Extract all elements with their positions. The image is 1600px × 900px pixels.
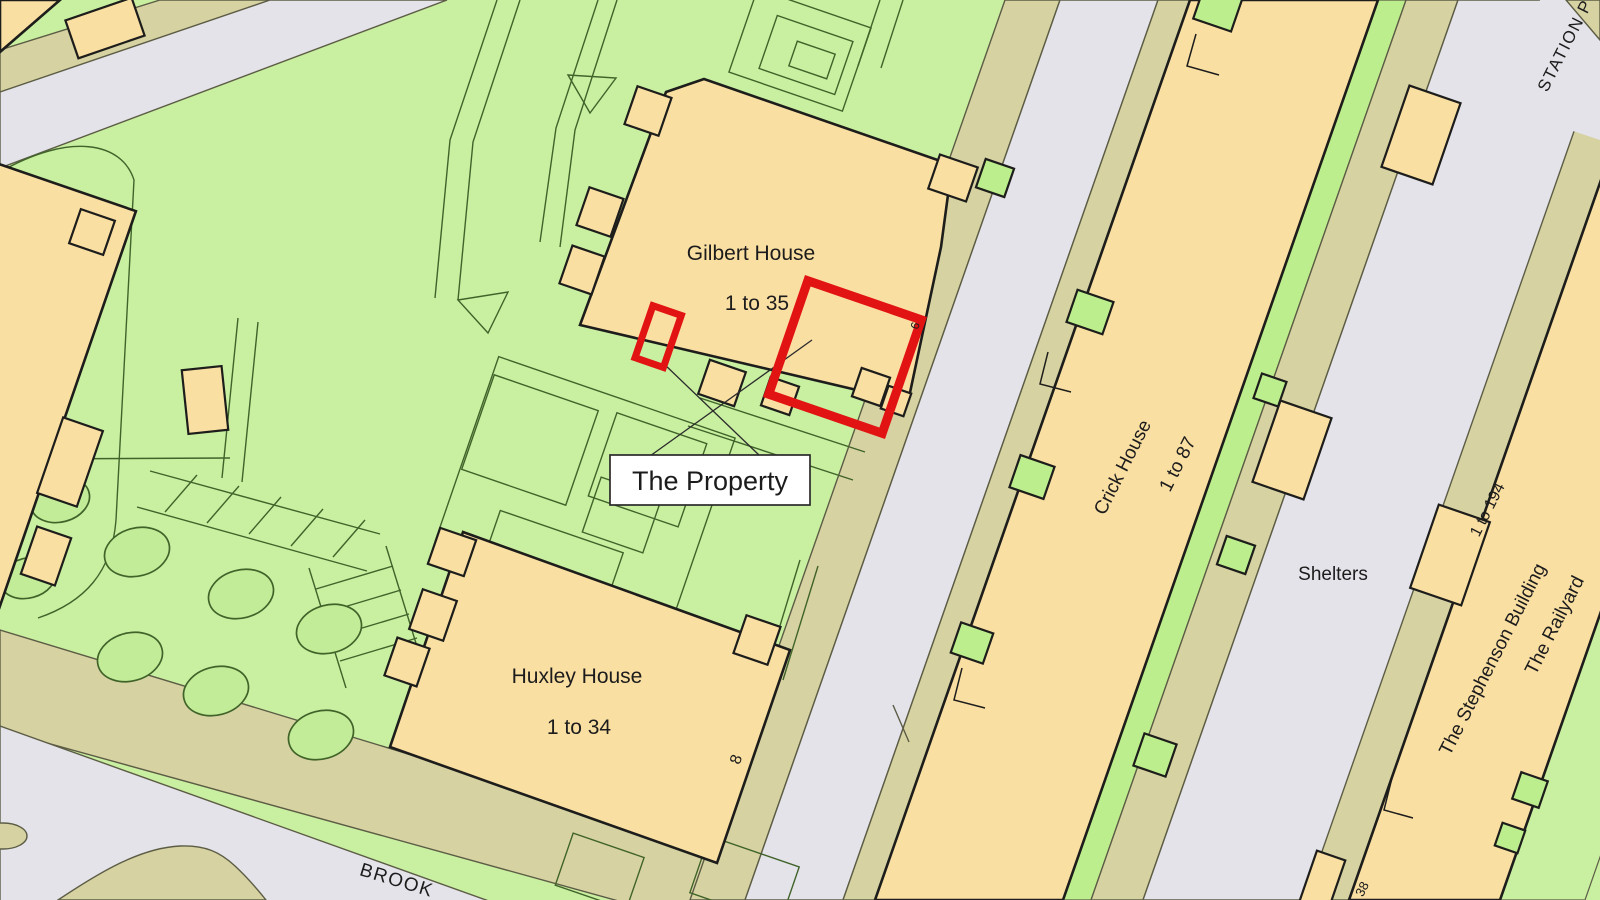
gilbert-house-range: 1 to 35	[725, 292, 789, 315]
shed-structure	[182, 366, 228, 434]
map-screenshot: The Property Gilbert House 1 to 35 Huxle…	[0, 0, 1600, 900]
shelters-label: Shelters	[1298, 564, 1368, 585]
map-canvas: The Property Gilbert House 1 to 35 Huxle…	[0, 0, 1600, 900]
property-label: The Property	[632, 466, 789, 496]
huxley-house-label: Huxley House	[512, 665, 643, 688]
huxley-house-range: 1 to 34	[547, 716, 612, 739]
gilbert-house-label: Gilbert House	[687, 242, 815, 265]
